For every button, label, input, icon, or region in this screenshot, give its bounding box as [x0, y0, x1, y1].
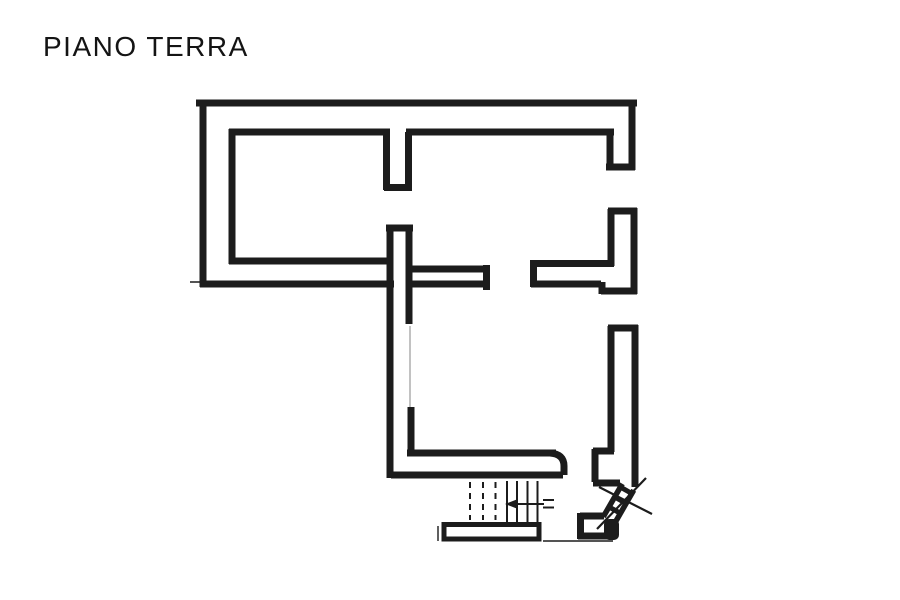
thin-lines-group — [190, 282, 613, 541]
stair-direction-arrow — [505, 499, 554, 509]
staircase-group — [444, 481, 554, 539]
diagonal-stair-group — [597, 478, 652, 540]
stair-landing — [444, 525, 539, 540]
page: PIANO TERRA — [0, 0, 900, 600]
newel-post — [604, 519, 619, 540]
floor-plan-svg — [0, 0, 900, 600]
walls-group — [196, 100, 638, 539]
